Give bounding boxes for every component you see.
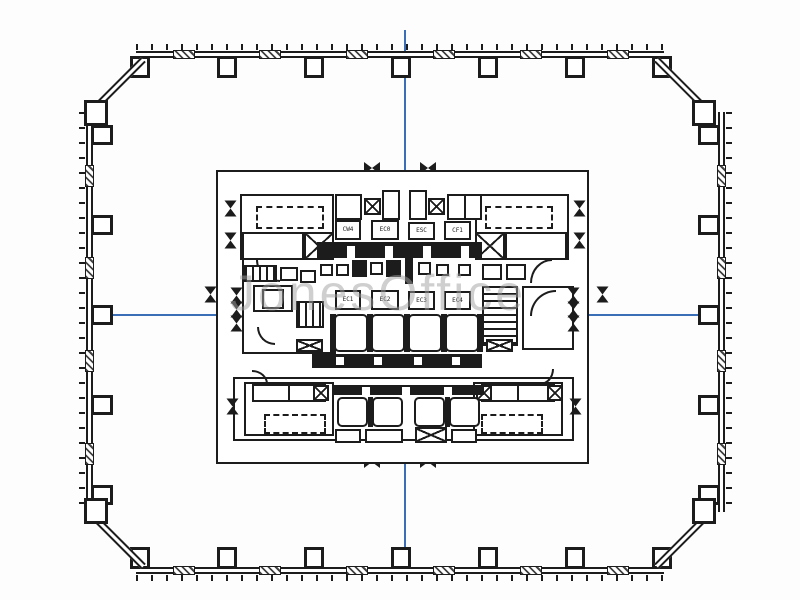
- door-opening: [347, 246, 355, 258]
- break-symbol: [226, 399, 239, 415]
- column: [478, 56, 498, 78]
- break-symbol: [567, 316, 580, 332]
- wall-panel: [346, 50, 368, 59]
- door-arc: [252, 370, 268, 384]
- wall-panel: [346, 566, 368, 575]
- break-symbol: [224, 201, 237, 217]
- wall-panel: [717, 257, 726, 279]
- break-symbol: [596, 287, 609, 303]
- column: [217, 547, 237, 569]
- break-symbol: [573, 233, 586, 249]
- mullion-ticks-top: [136, 44, 664, 50]
- shaft-label: EC0: [380, 227, 391, 233]
- shaft-x: [313, 385, 329, 401]
- shaft-wall: [445, 397, 450, 427]
- room: [382, 190, 400, 220]
- wall-panel: [173, 50, 195, 59]
- door-opening: [452, 357, 460, 365]
- wall: [464, 196, 466, 218]
- column: [91, 395, 113, 415]
- column-axis-left: [91, 305, 113, 325]
- column-axis-top: [391, 56, 411, 78]
- duct-zone: [264, 414, 326, 434]
- corner-column: [84, 100, 108, 126]
- elevator-car: [337, 397, 368, 427]
- wall-panel: [85, 165, 94, 187]
- column: [698, 395, 720, 415]
- column: [217, 56, 237, 78]
- floor-plan-canvas: CW4 EC0 ESC CF1: [0, 0, 800, 600]
- shaft-label-box: CW4: [335, 220, 361, 240]
- room: [335, 194, 362, 220]
- shaft-x: [296, 339, 323, 352]
- wall-panel: [433, 566, 455, 575]
- wall-panel: [520, 50, 542, 59]
- shaft-label: CF1: [452, 228, 463, 234]
- corner-column: [84, 498, 108, 524]
- shaft-wall: [368, 397, 373, 427]
- door-opening: [423, 246, 431, 258]
- break-symbol: [573, 201, 586, 217]
- shaft-label-box: EC0: [371, 220, 399, 240]
- watermark-text: JonesOffice: [230, 264, 526, 322]
- shaft-label-box: ESC: [408, 222, 435, 240]
- elevator-car: [449, 397, 480, 427]
- wall-panel: [607, 50, 629, 59]
- wall-panel: [259, 50, 281, 59]
- shaft-label: CW4: [343, 227, 354, 233]
- mullion-ticks-bottom: [136, 575, 664, 581]
- break-symbol: [204, 287, 217, 303]
- wall-panel: [85, 443, 94, 465]
- break-symbol: [569, 399, 582, 415]
- column: [478, 547, 498, 569]
- wall-panel: [259, 566, 281, 575]
- wall: [288, 386, 290, 400]
- wall: [517, 386, 519, 400]
- wall-panel: [85, 257, 94, 279]
- wall-panel: [607, 566, 629, 575]
- column: [698, 125, 720, 145]
- column: [91, 215, 113, 235]
- shaft-x: [415, 427, 447, 443]
- shaft-x: [486, 339, 513, 352]
- column: [698, 215, 720, 235]
- shaft-x: [364, 198, 381, 215]
- column: [565, 56, 585, 78]
- door-opening: [461, 246, 469, 258]
- duct-zone: [485, 206, 553, 229]
- column: [91, 125, 113, 145]
- duct-zone: [481, 414, 543, 434]
- break-symbol: [224, 233, 237, 249]
- column: [304, 547, 324, 569]
- door-opening: [362, 387, 370, 395]
- door-opening: [336, 357, 344, 365]
- room: [451, 429, 477, 443]
- wall-panel: [717, 443, 726, 465]
- door-opening: [414, 357, 422, 365]
- door-opening: [402, 387, 410, 395]
- shaft-label-box: CF1: [444, 221, 471, 240]
- corner-column: [692, 498, 716, 524]
- shaft-wall: [312, 354, 482, 368]
- shaft-wall: [332, 385, 484, 395]
- wall-panel: [85, 350, 94, 372]
- mullion-ticks-right: [726, 112, 732, 512]
- room: [409, 190, 427, 220]
- door-arc: [257, 327, 275, 345]
- shaft-wall: [317, 242, 482, 258]
- duct-zone: [256, 206, 324, 229]
- wall-panel: [520, 566, 542, 575]
- wall-panel: [717, 165, 726, 187]
- shaft-x: [428, 198, 445, 215]
- shaft-label: ESC: [416, 228, 427, 234]
- wall-panel: [173, 566, 195, 575]
- room: [505, 232, 567, 260]
- shaft-x: [547, 385, 563, 401]
- door-opening: [385, 246, 393, 258]
- column: [304, 56, 324, 78]
- column: [565, 547, 585, 569]
- column-axis-bottom: [391, 547, 411, 569]
- door-opening: [444, 387, 452, 395]
- room: [335, 429, 361, 443]
- room: [365, 429, 403, 443]
- column-axis-right: [698, 305, 720, 325]
- wall-panel: [433, 50, 455, 59]
- door-opening: [374, 357, 382, 365]
- door-arc: [530, 259, 552, 283]
- room: [242, 232, 304, 260]
- wall-panel: [717, 350, 726, 372]
- elevator-car: [414, 397, 445, 427]
- corner-column: [692, 100, 716, 126]
- elevator-car: [372, 397, 403, 427]
